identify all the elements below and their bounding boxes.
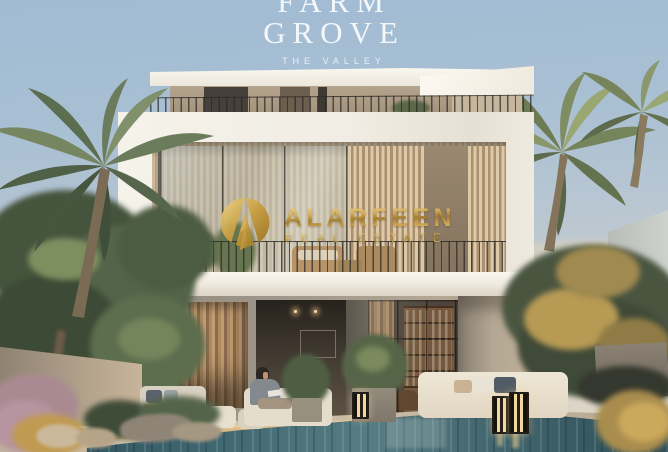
boulder	[36, 424, 82, 448]
golden-grass-highlight	[618, 402, 668, 442]
boulder	[76, 428, 116, 448]
alarfeen-logo-icon	[212, 192, 278, 258]
project-logo-line2: GROVE	[214, 17, 454, 49]
project-logo: FARM GROVE THE VALLEY	[214, 0, 454, 66]
villa-render-photo: FARM GROVE THE VALLEY ALARFEEN	[0, 0, 668, 452]
project-logo-tagline: THE VALLEY	[214, 56, 454, 66]
watermark-tagline: REAL ESTATE	[285, 233, 449, 245]
agency-watermark: ALARFEEN REAL ESTATE	[212, 192, 472, 256]
watermark-brand: ALARFEEN	[284, 204, 456, 233]
boulder	[172, 422, 222, 442]
